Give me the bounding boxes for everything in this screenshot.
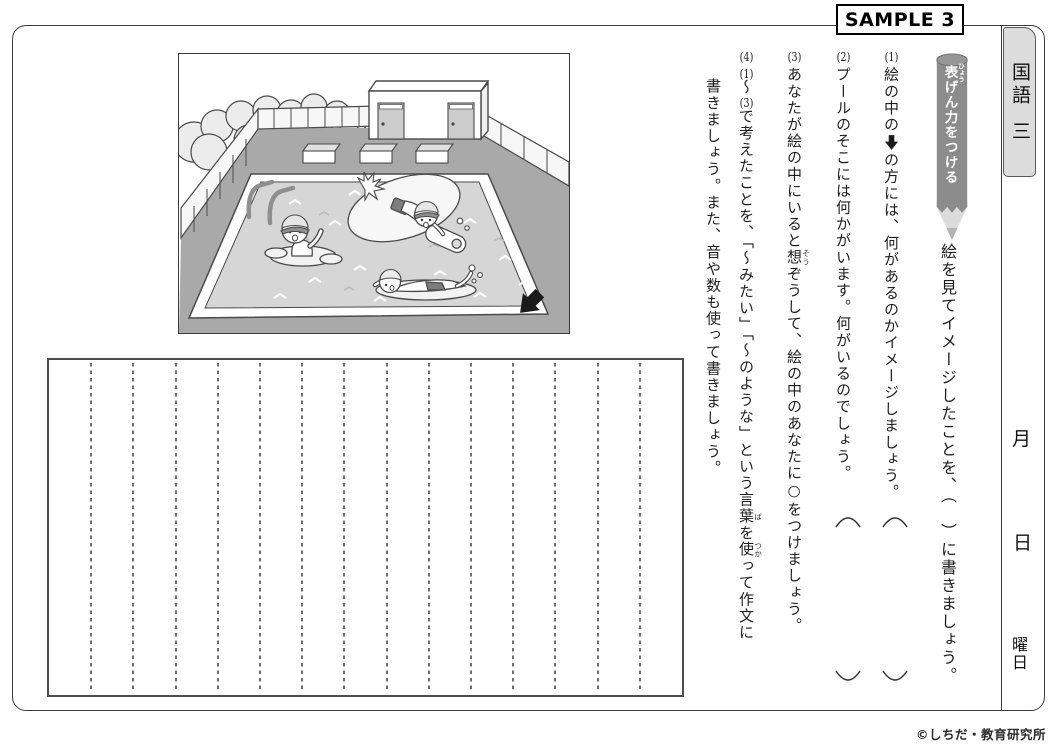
grade-label: 三 bbox=[1009, 121, 1031, 144]
date-month-label: 月 bbox=[1012, 430, 1031, 449]
subject-title: 国語三 bbox=[1010, 62, 1029, 144]
question-1-number: (1) bbox=[884, 50, 899, 63]
grid-column-divider bbox=[428, 363, 430, 692]
question-4-line-2: 書きましょう。また、音や数も使って書きましょう。 bbox=[705, 78, 720, 476]
grid-column-divider bbox=[639, 363, 641, 692]
grid-column-divider bbox=[386, 363, 388, 692]
question-2-number: (2) bbox=[836, 50, 851, 63]
grid-column-divider bbox=[132, 363, 134, 692]
subject-tab: 国語三 bbox=[1003, 27, 1036, 177]
sample-label: SAMPLE 3 bbox=[836, 4, 964, 35]
question-4-number: (4) bbox=[739, 50, 754, 63]
copyright-notice: ©しちだ・教育研究所 bbox=[916, 724, 1046, 743]
question-4-line-1: (4)(1)～(3)で考えたことを、「～みたい」「～のような」という言葉ばを使つ… bbox=[738, 50, 762, 641]
grid-column-divider bbox=[470, 363, 472, 692]
grid-column-divider bbox=[259, 363, 261, 692]
answer-bracket-q2[interactable] bbox=[833, 506, 863, 692]
question-1: (1)絵の中のの方には、何があるのかイメージしましょう。 bbox=[883, 50, 898, 501]
pool-scene bbox=[179, 54, 569, 333]
grid-column-divider bbox=[175, 363, 177, 692]
grid-column-divider bbox=[301, 363, 303, 692]
writing-grid[interactable] bbox=[47, 358, 684, 697]
right-strip-divider bbox=[1001, 25, 1002, 710]
question-3-number: (3) bbox=[787, 50, 802, 63]
subject-name: 国語 bbox=[1009, 62, 1031, 108]
question-3: (3)あなたが絵の中にいると想そうぞうして、絵の中のあなたに○をつけましょう。 bbox=[786, 50, 810, 634]
banner-title: 表ひょうげん力をつける bbox=[942, 63, 965, 185]
date-day-label: 日 bbox=[1013, 534, 1032, 553]
starting-blocks bbox=[303, 144, 453, 163]
grid-column-divider bbox=[597, 363, 599, 692]
worksheet-page: SAMPLE 3 国語三 月 日 曜日 表ひょうげん力をつける 絵を見てイメージ… bbox=[0, 0, 1059, 756]
black-down-arrow-icon bbox=[885, 135, 898, 150]
grid-column-divider bbox=[90, 363, 92, 692]
grid-column-divider bbox=[554, 363, 556, 692]
changing-room-building bbox=[369, 81, 488, 139]
pool-illustration bbox=[178, 53, 570, 334]
date-weekday-label: 曜日 bbox=[1010, 636, 1026, 672]
grid-column-divider bbox=[343, 363, 345, 692]
grid-column-divider bbox=[512, 363, 514, 692]
fence-back bbox=[258, 106, 379, 129]
answer-bracket-q1[interactable] bbox=[880, 506, 910, 692]
grid-column-divider bbox=[217, 363, 219, 692]
question-2: (2)プールのそこには何かがいます。何がいるのでしょう。 bbox=[835, 50, 850, 482]
headline-instruction: 絵を見てイメージしたことを、（ ）に書きましょう。 bbox=[939, 243, 955, 685]
